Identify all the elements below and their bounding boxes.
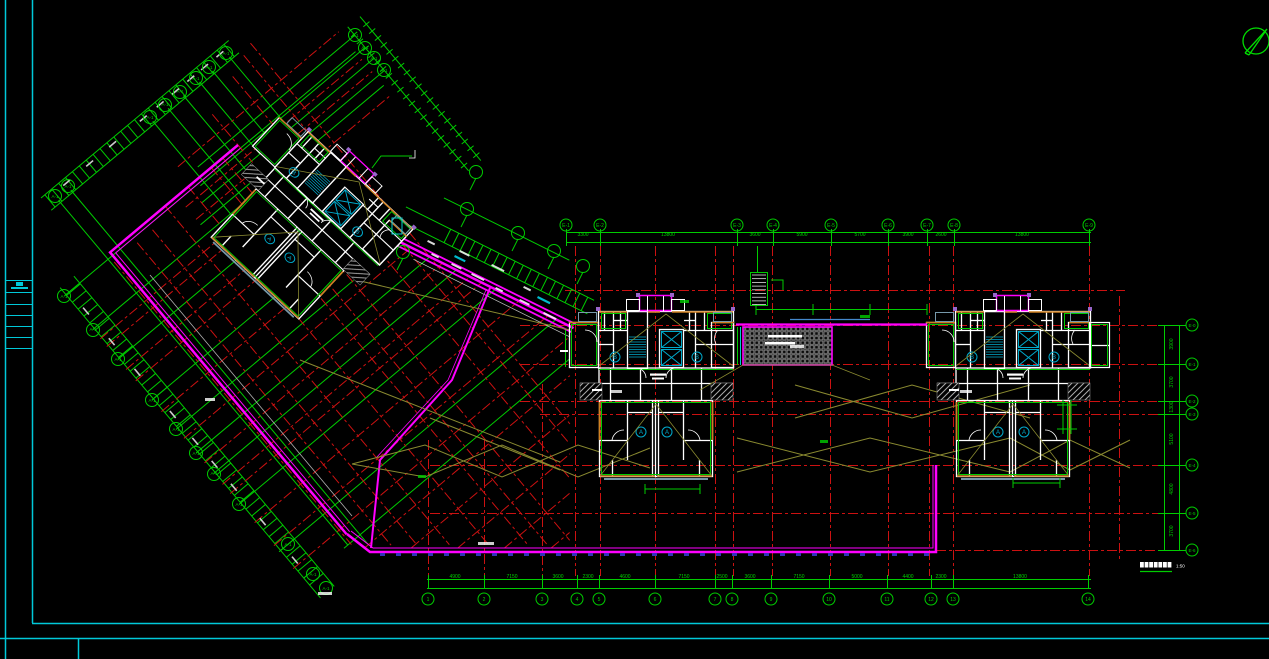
svg-text:E-1: E-1 xyxy=(562,223,570,229)
svg-text:A-1: A-1 xyxy=(222,51,230,56)
svg-text:A-1: A-1 xyxy=(176,89,184,94)
svg-text:8: 8 xyxy=(731,597,734,603)
svg-text:A-1: A-1 xyxy=(192,76,200,81)
svg-text:E-0: E-0 xyxy=(1188,323,1196,328)
svg-text:E-7: E-7 xyxy=(923,223,931,229)
svg-text:A-1: A-1 xyxy=(284,542,292,547)
svg-text:9: 9 xyxy=(770,597,773,603)
svg-text:7150: 7150 xyxy=(793,574,804,580)
svg-text:A-1: A-1 xyxy=(114,357,122,362)
svg-text:2500: 2500 xyxy=(716,574,727,580)
svg-text:E-9: E-9 xyxy=(1085,223,1093,229)
svg-text:12: 12 xyxy=(928,597,934,603)
svg-text:A-1: A-1 xyxy=(146,115,154,120)
svg-text:5100: 5100 xyxy=(1169,433,1175,444)
svg-text:3600: 3600 xyxy=(744,574,755,580)
svg-text:3: 3 xyxy=(541,597,544,603)
svg-text:A-1: A-1 xyxy=(351,33,359,38)
svg-text:A-1: A-1 xyxy=(161,102,169,107)
svg-text:A-1: A-1 xyxy=(210,471,218,476)
svg-text:E-3: E-3 xyxy=(733,223,741,229)
svg-text:A-1: A-1 xyxy=(235,502,243,507)
svg-text:A-1: A-1 xyxy=(60,294,68,299)
svg-text:A-1: A-1 xyxy=(322,586,330,591)
svg-text:E-3: E-3 xyxy=(1188,412,1196,417)
svg-text:11: 11 xyxy=(884,597,889,603)
svg-text:A-1: A-1 xyxy=(148,398,156,403)
svg-text:13: 13 xyxy=(950,597,956,603)
svg-text:A-1: A-1 xyxy=(89,327,97,332)
svg-text:14: 14 xyxy=(1085,597,1091,603)
svg-text:4: 4 xyxy=(576,597,579,603)
svg-text:E-5: E-5 xyxy=(827,223,835,229)
svg-text:5700: 5700 xyxy=(854,232,865,238)
svg-text:6: 6 xyxy=(654,597,657,603)
svg-text:3600: 3600 xyxy=(552,574,563,580)
svg-text:7150: 7150 xyxy=(506,574,517,580)
svg-text:2300: 2300 xyxy=(582,574,593,580)
svg-text:5: 5 xyxy=(598,597,601,603)
svg-text:3300: 3300 xyxy=(577,232,588,238)
svg-text:1:50: 1:50 xyxy=(1176,564,1185,569)
svg-text:A-1: A-1 xyxy=(309,572,317,577)
svg-text:A-1: A-1 xyxy=(361,45,369,50)
svg-text:3700: 3700 xyxy=(1169,376,1175,387)
svg-text:A-1: A-1 xyxy=(205,65,213,70)
svg-text:3600: 3600 xyxy=(749,232,760,238)
svg-text:A-1: A-1 xyxy=(192,451,200,456)
svg-text:7: 7 xyxy=(714,597,717,603)
svg-text:4400: 4400 xyxy=(902,574,913,580)
svg-text:1: 1 xyxy=(427,597,430,603)
svg-text:5000: 5000 xyxy=(851,574,862,580)
svg-text:E-6: E-6 xyxy=(1188,548,1196,553)
svg-text:13800: 13800 xyxy=(1015,232,1029,238)
svg-text:A-1: A-1 xyxy=(370,56,378,61)
svg-text:E-4: E-4 xyxy=(1188,463,1196,468)
svg-text:13800: 13800 xyxy=(661,232,675,238)
svg-text:2600: 2600 xyxy=(935,232,946,238)
svg-text:3900: 3900 xyxy=(902,232,913,238)
svg-text:A-1: A-1 xyxy=(172,427,180,432)
svg-text:E-1: E-1 xyxy=(1188,362,1196,367)
svg-text:E-2: E-2 xyxy=(596,223,604,229)
svg-text:E-5: E-5 xyxy=(1188,511,1196,516)
svg-text:2300: 2300 xyxy=(935,574,946,580)
svg-text:5900: 5900 xyxy=(796,232,807,238)
svg-text:13800: 13800 xyxy=(1013,574,1027,580)
svg-text:1300: 1300 xyxy=(1169,401,1175,412)
svg-text:4800: 4800 xyxy=(1169,483,1175,494)
svg-text:3900: 3900 xyxy=(1169,338,1175,349)
svg-text:E-8: E-8 xyxy=(950,223,958,229)
svg-text:A-1: A-1 xyxy=(51,194,59,199)
svg-text:A-1: A-1 xyxy=(380,68,388,73)
svg-text:A-1: A-1 xyxy=(64,184,72,189)
svg-text:4600: 4600 xyxy=(619,574,630,580)
svg-text:7150: 7150 xyxy=(678,574,689,580)
svg-text:E-4: E-4 xyxy=(769,223,777,229)
svg-text:E-6: E-6 xyxy=(884,223,892,229)
svg-text:10: 10 xyxy=(826,597,832,603)
svg-text:4900: 4900 xyxy=(449,574,460,580)
svg-text:3700: 3700 xyxy=(1169,525,1175,536)
svg-text:2: 2 xyxy=(483,597,486,603)
svg-text:E-2: E-2 xyxy=(1188,399,1196,404)
